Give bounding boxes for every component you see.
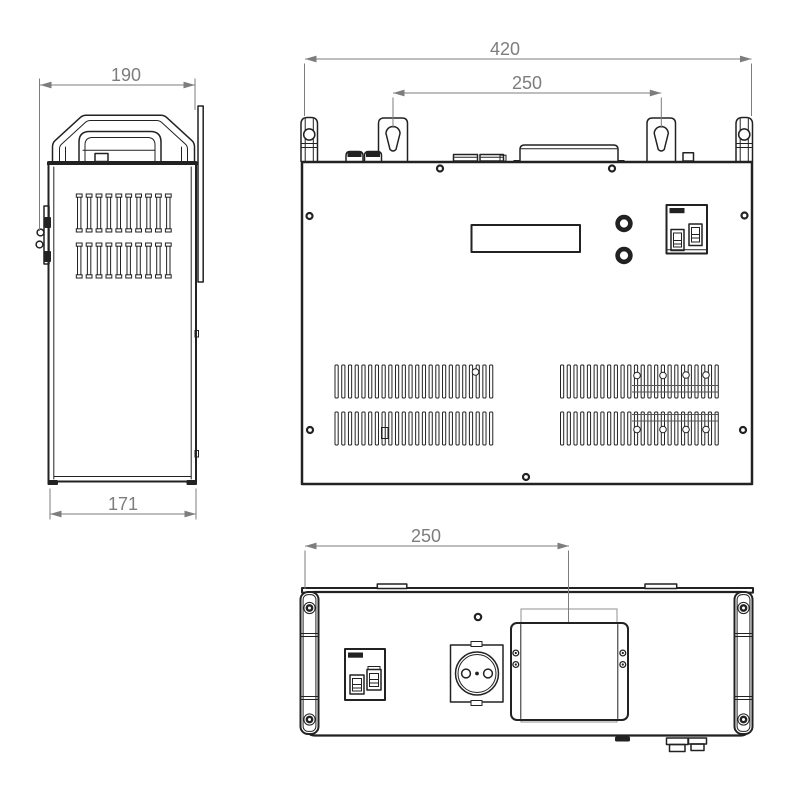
side-vent-grille: [76, 194, 171, 278]
vent-slat: [436, 412, 439, 445]
vent-slat: [342, 412, 345, 445]
vent-slat: [469, 412, 472, 445]
arrowhead: [558, 543, 570, 550]
vent-slat-cap: [146, 194, 152, 197]
side-foot: [48, 480, 59, 485]
vent-slat: [601, 365, 604, 398]
cover-screw-dot: [515, 652, 517, 654]
bottom-connectors: [615, 737, 707, 752]
vent-slat: [395, 412, 398, 445]
vent-slat: [456, 412, 459, 445]
vent-slat: [668, 412, 671, 445]
vent-slat: [147, 195, 150, 231]
vent-slat: [147, 244, 150, 277]
vent-slat: [587, 412, 590, 445]
vent-slat: [695, 412, 698, 445]
breaker-label: [670, 208, 685, 213]
vent-slat: [402, 412, 405, 445]
vent-slat-cap: [106, 275, 112, 278]
latch-block: [45, 217, 52, 228]
panel-button[interactable]: [618, 217, 631, 230]
vent-slat-cap: [165, 229, 171, 232]
vent-slat: [648, 365, 651, 398]
vent-slat-cap: [156, 275, 162, 278]
vent-slat: [436, 365, 439, 398]
vent-slat-cap: [106, 194, 112, 197]
terminal-connector: [691, 744, 704, 751]
handle-outer-tube: [53, 115, 195, 161]
vent-slat-cap: [126, 275, 132, 278]
terminal-connector: [667, 738, 689, 745]
vent-slat-cap: [76, 194, 82, 197]
handle-notch: [95, 154, 108, 162]
bottom-socket: [451, 642, 504, 706]
vent-slat: [389, 365, 392, 398]
vent-slat-cap: [86, 275, 92, 278]
vent-slat-cap: [96, 243, 102, 246]
vent-slat: [587, 365, 590, 398]
vent-slat: [628, 365, 631, 398]
vent-slat: [348, 365, 351, 398]
vent-internal-bolt: [660, 372, 667, 379]
vent-slat: [449, 365, 452, 398]
cover-screw-dot: [622, 663, 624, 665]
vent-slat-cap: [165, 243, 171, 246]
vent-slat: [621, 365, 624, 398]
vent-slat: [167, 195, 170, 231]
cover-screw-dot: [622, 652, 624, 654]
panel-screw: [307, 427, 313, 433]
arrowhead: [40, 82, 52, 89]
vent-slat: [567, 412, 570, 445]
panel-screw: [437, 166, 443, 172]
vent-slat: [355, 412, 358, 445]
top-small-bump: [683, 153, 694, 161]
vent-slat: [561, 365, 564, 398]
vent-slat: [621, 412, 624, 445]
vent-slat: [567, 365, 570, 398]
vent-slat-cap: [106, 229, 112, 232]
vent-slat: [443, 365, 446, 398]
vent-slat-cap: [126, 194, 132, 197]
vent-slat: [574, 412, 577, 445]
fuse-bump-cap: [366, 152, 380, 157]
vent-slat: [483, 412, 486, 445]
mount-strip: [198, 106, 203, 282]
vent-slat: [668, 365, 671, 398]
vent-slat: [375, 412, 378, 445]
vent-internal-bolt: [660, 426, 667, 433]
vent-slat: [681, 365, 684, 398]
back-edge-tab: [645, 584, 677, 589]
vent-slat: [483, 365, 486, 398]
vent-slat: [449, 412, 452, 445]
vent-slat: [608, 365, 611, 398]
vent-slat: [648, 412, 651, 445]
bracket-ball: [304, 129, 315, 140]
dim-front-keyhole-spacing: 250: [393, 73, 661, 128]
vent-slat: [395, 365, 398, 398]
vent-slat: [409, 365, 412, 398]
arrowhead: [50, 511, 62, 518]
latch-block: [44, 251, 51, 262]
vent-slat-cap: [136, 275, 142, 278]
vent-slat: [375, 365, 378, 398]
side-body: [47, 162, 198, 485]
vent-slat-cap: [136, 194, 142, 197]
vent-slat-cap: [146, 243, 152, 246]
vent-slat: [127, 244, 130, 277]
vent-slat: [78, 195, 81, 231]
dim-label: 250: [411, 526, 441, 546]
terminal-connector: [689, 738, 707, 744]
vent-slat: [107, 195, 110, 231]
vent-slat-cap: [156, 229, 162, 232]
vent-slat-cap: [96, 275, 102, 278]
vent-slat: [688, 365, 691, 398]
vent-slat: [342, 365, 345, 398]
vent-slat: [137, 195, 140, 231]
vent-slat: [127, 195, 130, 231]
vent-slat-cap: [116, 229, 122, 232]
vent-slat: [369, 412, 372, 445]
arrowhead: [305, 56, 317, 63]
vent-slat: [335, 365, 338, 398]
vent-slat: [634, 365, 637, 398]
socket-center-dot: [475, 672, 479, 676]
vent-slat: [675, 365, 678, 398]
vent-slat: [463, 365, 466, 398]
vent-slat: [594, 412, 597, 445]
dim-side-depth: 171: [50, 489, 196, 520]
vent-slat: [382, 365, 385, 398]
vent-slat-cap: [126, 229, 132, 232]
vent-slat: [490, 412, 493, 445]
back-edge-tab: [377, 584, 407, 589]
vent-slat: [702, 365, 705, 398]
arrowhead: [393, 90, 405, 97]
vent-slat-cap: [86, 229, 92, 232]
vent-slat: [456, 365, 459, 398]
breaker-label: [348, 653, 363, 658]
latch-knob: [36, 241, 43, 248]
vent-slat-cap: [76, 243, 82, 246]
vent-slat-cap: [146, 275, 152, 278]
vent-slat-cap: [116, 194, 122, 197]
bracket-screw-center: [742, 607, 745, 610]
keyhole-mount-plates: [379, 118, 676, 162]
fuse-bump-cap: [348, 152, 362, 157]
vent-internal-bolt: [683, 426, 690, 433]
vent-slat: [574, 365, 577, 398]
dim-label: 420: [490, 39, 520, 59]
vent-slat: [167, 244, 170, 277]
vent-slat-cap: [116, 243, 122, 246]
vent-slat: [348, 412, 351, 445]
side-view: 190 171: [36, 65, 203, 520]
bracket-screw-center: [742, 718, 745, 721]
vent-slat: [581, 412, 584, 445]
vent-slat: [490, 365, 493, 398]
vent-slat: [107, 244, 110, 277]
vent-slat: [137, 244, 140, 277]
vent-internal-bolt: [683, 372, 690, 379]
cable-gland: [615, 737, 630, 742]
vent-slat: [715, 412, 718, 445]
vent-slat-cap: [156, 243, 162, 246]
vent-slat-cap: [86, 243, 92, 246]
vent-internal-bolt: [703, 426, 710, 433]
vent-slat: [443, 412, 446, 445]
vent-slat: [355, 365, 358, 398]
dim-label: 250: [512, 73, 542, 93]
vent-slat: [594, 365, 597, 398]
arrowhead: [185, 511, 197, 518]
vent-slat: [561, 412, 564, 445]
vent-slat-cap: [106, 243, 112, 246]
vent-slat-cap: [116, 275, 122, 278]
top-strip: [454, 155, 478, 162]
handle-grip-outer: [79, 132, 161, 162]
vent-slat: [675, 412, 678, 445]
vent-slat: [87, 244, 90, 277]
bottom-screw: [475, 614, 481, 620]
side-enclosure: [49, 162, 197, 482]
vent-slat: [429, 412, 432, 445]
latch-knob: [37, 229, 44, 236]
bracket-screw-center: [308, 607, 311, 610]
socket-tab: [471, 642, 482, 647]
arrowhead: [184, 82, 196, 89]
vent-internal-bolt: [703, 372, 710, 379]
vent-slat: [369, 365, 372, 398]
vent-slat: [87, 195, 90, 231]
vent-slat-cap: [156, 194, 162, 197]
screw: [475, 614, 481, 620]
front-buttons: [618, 217, 631, 262]
vent-slat: [362, 365, 365, 398]
vent-slat: [422, 412, 425, 445]
side-latch-detail: [36, 206, 51, 264]
terminal-cover: [511, 623, 628, 720]
vent-slat-cap: [76, 229, 82, 232]
panel-screw: [307, 213, 313, 219]
vent-slat: [476, 412, 479, 445]
dim-label: 190: [111, 65, 141, 85]
vent-internal-bolt: [634, 372, 641, 379]
vent-slat: [695, 365, 698, 398]
front-breaker: [667, 205, 708, 254]
vent-slat: [362, 412, 365, 445]
vent-slat: [641, 365, 644, 398]
display-window: [472, 225, 581, 252]
vent-slat: [402, 365, 405, 398]
vent-slat: [409, 412, 412, 445]
panel-screw: [740, 427, 746, 433]
vent-slat: [655, 412, 658, 445]
vent-slat-cap: [96, 194, 102, 197]
vent-slat-cap: [136, 243, 142, 246]
vent-slat: [389, 412, 392, 445]
vent-internal-bolt: [472, 369, 479, 376]
vent-slat: [661, 365, 664, 398]
vent-slat: [601, 412, 604, 445]
arrowhead: [740, 56, 752, 63]
vent-slat-cap: [126, 243, 132, 246]
vent-slat: [78, 244, 81, 277]
bracket-ball: [739, 129, 750, 140]
socket-tab: [471, 701, 482, 706]
front-display: [472, 225, 581, 252]
vent-slat: [416, 365, 419, 398]
vent-slat: [157, 244, 160, 277]
bottom-terminal-cover: [511, 609, 628, 722]
vent-slat: [117, 195, 120, 231]
vent-slat: [422, 365, 425, 398]
vent-slat: [715, 365, 718, 398]
side-foot: [187, 480, 198, 485]
vent-slat-cap: [165, 194, 171, 197]
vent-slat: [463, 412, 466, 445]
bracket-screw-center: [308, 718, 311, 721]
vent-slat: [608, 412, 611, 445]
vent-slat: [655, 365, 658, 398]
vent-slat: [641, 412, 644, 445]
vent-slat-cap: [136, 229, 142, 232]
vent-slat-cap: [165, 275, 171, 278]
vent-slat: [469, 365, 472, 398]
vent-slat-cap: [86, 194, 92, 197]
vent-slat: [614, 365, 617, 398]
vent-slat: [429, 365, 432, 398]
vent-slat: [628, 412, 631, 445]
vent-slat: [382, 412, 385, 445]
vent-slat-cap: [96, 229, 102, 232]
terminal-connector: [670, 745, 686, 752]
vent-slat-cap: [146, 229, 152, 232]
carry-handle: [53, 115, 195, 161]
vent-slat: [581, 365, 584, 398]
front-view: 420 250: [301, 39, 753, 484]
vent-slat: [708, 365, 711, 398]
panel-screw: [609, 166, 615, 172]
cover-screw-dot: [515, 663, 517, 665]
vent-internal-bolt: [634, 426, 641, 433]
vent-slat: [97, 195, 100, 231]
vent-slat: [614, 412, 617, 445]
panel-screw: [523, 474, 529, 480]
arrowhead: [650, 90, 662, 97]
stabilizer-technical-drawing: 190 171: [0, 0, 800, 800]
panel-screw: [742, 213, 748, 219]
panel-button[interactable]: [618, 249, 631, 262]
bottom-view: 250: [301, 526, 754, 752]
vent-slat: [335, 412, 338, 445]
dim-label: 171: [108, 494, 138, 514]
top-raised-block: [514, 145, 625, 161]
vent-slat: [97, 244, 100, 277]
vent-slat: [416, 412, 419, 445]
vent-slat-cap: [76, 275, 82, 278]
arrowhead: [305, 543, 317, 550]
vent-slat: [157, 195, 160, 231]
vent-slat: [117, 244, 120, 277]
